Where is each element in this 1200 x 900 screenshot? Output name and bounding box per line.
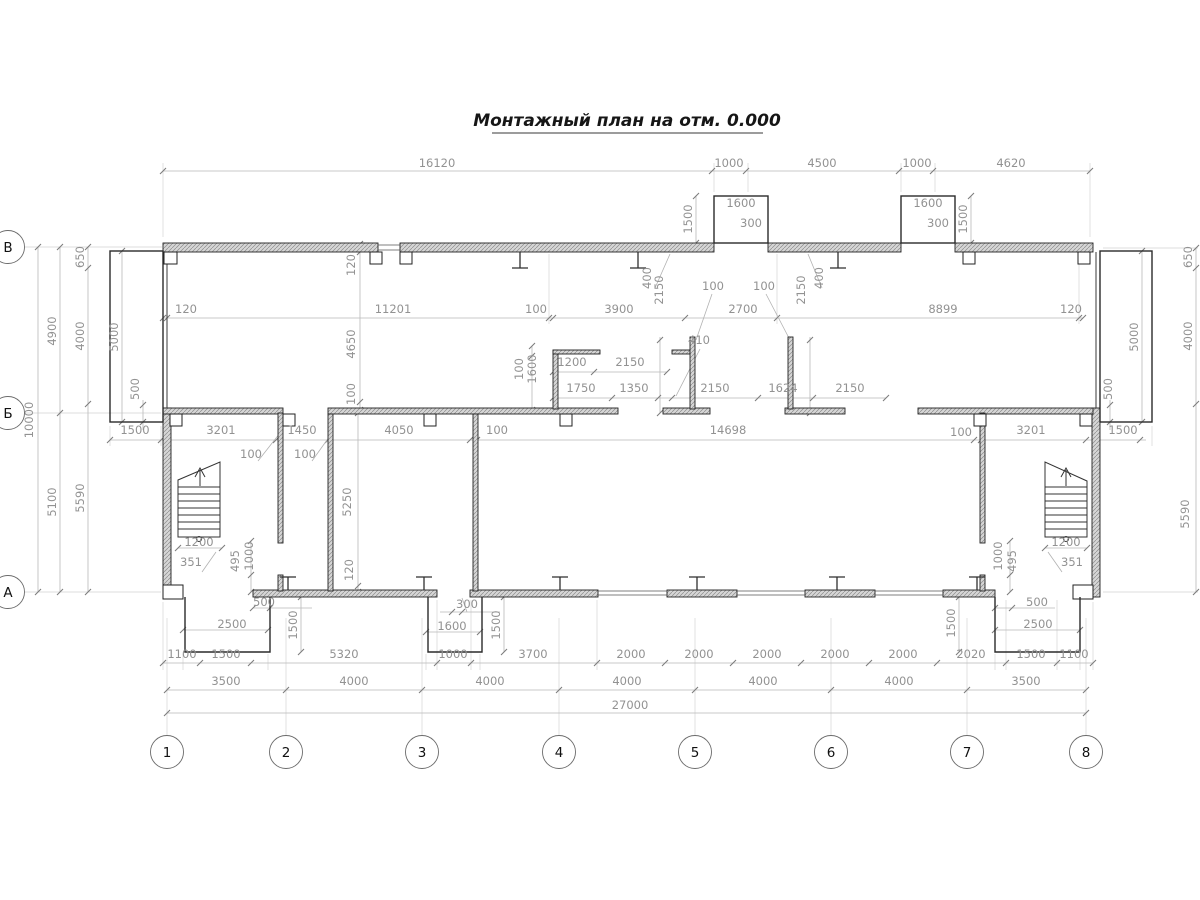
dim-label: 10000 [22,402,36,439]
dim-label: 1000 [902,156,931,170]
exterior-wall-top [163,243,378,252]
pier [560,414,572,426]
pier [400,252,412,264]
dim-label: 1100 [1059,647,1088,661]
dim-label: 120 [344,254,358,276]
dim-label: 2000 [752,647,781,661]
wall-axis-b [663,408,710,414]
dim-label: 100 [240,447,262,461]
partition-stub [553,350,600,354]
dim-label: 4650 [344,329,358,358]
dim-label: 2000 [616,647,645,661]
dim-label: 100 [344,383,358,405]
dim-label: 495 [228,550,242,572]
dim-label: 2500 [217,617,246,631]
dim-label: 100 [702,279,724,293]
dim-label: 300 [740,216,762,230]
dim-label: 100 [512,358,526,380]
dim-label: 500 [128,378,142,400]
dim-label: 1600 [726,196,755,210]
dim-label: 1000 [242,541,256,570]
dim-label: 2000 [820,647,849,661]
pier [974,414,986,426]
dim-label: 3900 [604,302,633,316]
dim-label: 1000 [714,156,743,170]
dim-label: 1200 [1051,535,1080,549]
dim-label: 4900 [45,316,59,345]
pier [963,252,975,264]
dim-label: 16120 [419,156,456,170]
dim-label: 1500 [681,204,695,233]
dim-label: 3500 [1011,674,1040,688]
dim-label: 4050 [384,423,413,437]
exterior-wall-bottom [805,590,875,597]
dim-label: 5000 [1127,322,1141,351]
dim-label: 120 [1060,302,1082,316]
dim-label: 650 [73,246,87,268]
exterior-wall-left [163,408,171,597]
exterior-wall-top [955,243,1093,252]
dim-label: 1600 [913,196,942,210]
dim-label: 14698 [710,423,747,437]
exterior-wall-top [400,243,714,252]
dim-label: 4000 [339,674,368,688]
dim-label: 2150 [835,381,864,395]
axis-row-Б-label: Б [3,406,12,422]
dim-label: 4620 [996,156,1025,170]
dim-label: 300 [456,597,478,611]
dim-label: 1500 [1108,423,1137,437]
dim-label: 400 [812,267,826,289]
wall-axis-b [785,408,845,414]
wall-axis-b [918,408,1093,414]
pier [370,252,382,264]
axis-row-А-label: А [3,585,13,601]
partition [328,414,333,591]
exterior-wall-bottom [470,590,598,597]
axis-col-2-label: 2 [282,745,291,761]
axis-col-7-label: 7 [963,745,972,761]
dim-label: 100 [950,425,972,439]
partition [473,414,478,591]
dim-label: 5000 [107,322,121,351]
dim-label: 4000 [884,674,913,688]
dim-label: 27000 [612,698,649,712]
wall-axis-b [163,408,283,414]
axis-col-3-label: 3 [418,745,427,761]
dim-label: 1500 [944,608,958,637]
dim-label: 100 [525,302,547,316]
dim-label: 3201 [1016,423,1045,437]
dim-label: 2150 [794,275,808,304]
dim-label: 500 [253,595,275,609]
dim-label: 1500 [120,423,149,437]
axis-col-1-label: 1 [163,745,172,761]
dim-label: 1500 [1016,647,1045,661]
dim-label: 2020 [956,647,985,661]
partition-stairwell-right [980,413,985,543]
dim-label: 11201 [375,302,412,316]
dim-label: 500 [1026,595,1048,609]
pier [1080,414,1092,426]
dim-label: 351 [180,555,202,569]
dim-label: 120 [175,302,197,316]
dim-label: 4000 [612,674,641,688]
dim-label: 495 [1005,550,1019,572]
dim-label: 1600 [525,354,539,383]
axis-col-5-label: 5 [691,745,700,761]
floor-plan-canvas: Монтажный план на отм. 0.000 [0,0,1200,900]
dim-label: 5590 [73,483,87,512]
dim-label: 1350 [619,381,648,395]
exterior-wall-bottom [943,590,995,597]
dim-labels-layer: 1612010004500100046201600300160030015001… [22,156,1195,712]
dim-label: 3700 [518,647,547,661]
dim-label: 1200 [184,535,213,549]
dim-label: 100 [486,423,508,437]
dim-label: 1000 [991,541,1005,570]
dim-label: 2700 [728,302,757,316]
dim-label: 2150 [615,355,644,369]
dim-label: 3500 [211,674,240,688]
dim-label: 1000 [438,647,467,661]
exterior-wall-top [768,243,901,252]
dim-label: 2150 [652,275,666,304]
corner-pier [163,585,183,599]
drawing-sheet: Монтажный план на отм. 0.000 [0,0,1200,900]
exterior-wall-bottom [667,590,737,597]
dim-label: 500 [1101,378,1115,400]
dim-label: 4000 [475,674,504,688]
partition-stub [672,350,690,354]
partition [788,337,793,409]
dim-label: 1500 [489,610,503,639]
partition [690,337,695,409]
stair-left [178,462,220,542]
dim-label: 2500 [1023,617,1052,631]
dim-label: 1500 [286,610,300,639]
dim-label: 2000 [888,647,917,661]
dim-label: 4000 [748,674,777,688]
dim-label: 1450 [287,423,316,437]
dim-label: 4000 [1181,321,1195,350]
dim-label: 1624 [768,381,797,395]
exterior-wall-right [1092,408,1100,597]
partition-stairwell-left [278,413,283,543]
dim-label: 351 [1061,555,1083,569]
dim-label: 1600 [437,619,466,633]
axis-col-6-label: 6 [827,745,836,761]
dim-label: 2150 [700,381,729,395]
pier [170,414,182,426]
stair-direction-arrow [195,468,205,486]
dim-label: 5100 [45,487,59,516]
stair-right [1045,462,1087,542]
dim-label: 100 [294,447,316,461]
dim-label: 8899 [928,302,957,316]
dim-label: 650 [1181,246,1195,268]
drawing-title: Монтажный план на отм. 0.000 [473,111,781,131]
dim-label: 4000 [73,321,87,350]
stair-direction-arrow [1061,468,1071,486]
dim-label: 3201 [206,423,235,437]
axis-col-4-label: 4 [555,745,564,761]
dim-label: 4500 [807,156,836,170]
dim-label: 2000 [684,647,713,661]
dim-label: 1200 [557,355,586,369]
walls [163,243,1100,597]
pier [424,414,436,426]
dim-label: 1500 [956,204,970,233]
dim-label: 5320 [329,647,358,661]
dim-label: 410 [688,333,710,347]
axis-row-В-label: В [3,240,12,256]
dim-label: 100 [753,279,775,293]
dim-label: 120 [342,559,356,581]
dim-label: 300 [927,216,949,230]
pier [164,252,177,264]
wall-axis-b [328,408,618,414]
dim-label: 1100 [167,647,196,661]
axis-col-8-label: 8 [1082,745,1091,761]
pier [1078,252,1090,264]
dim-label: 5250 [340,487,354,516]
corner-pier [1073,585,1093,599]
dim-label: 1500 [211,647,240,661]
dim-label: 5590 [1178,499,1192,528]
dim-label: 1750 [566,381,595,395]
